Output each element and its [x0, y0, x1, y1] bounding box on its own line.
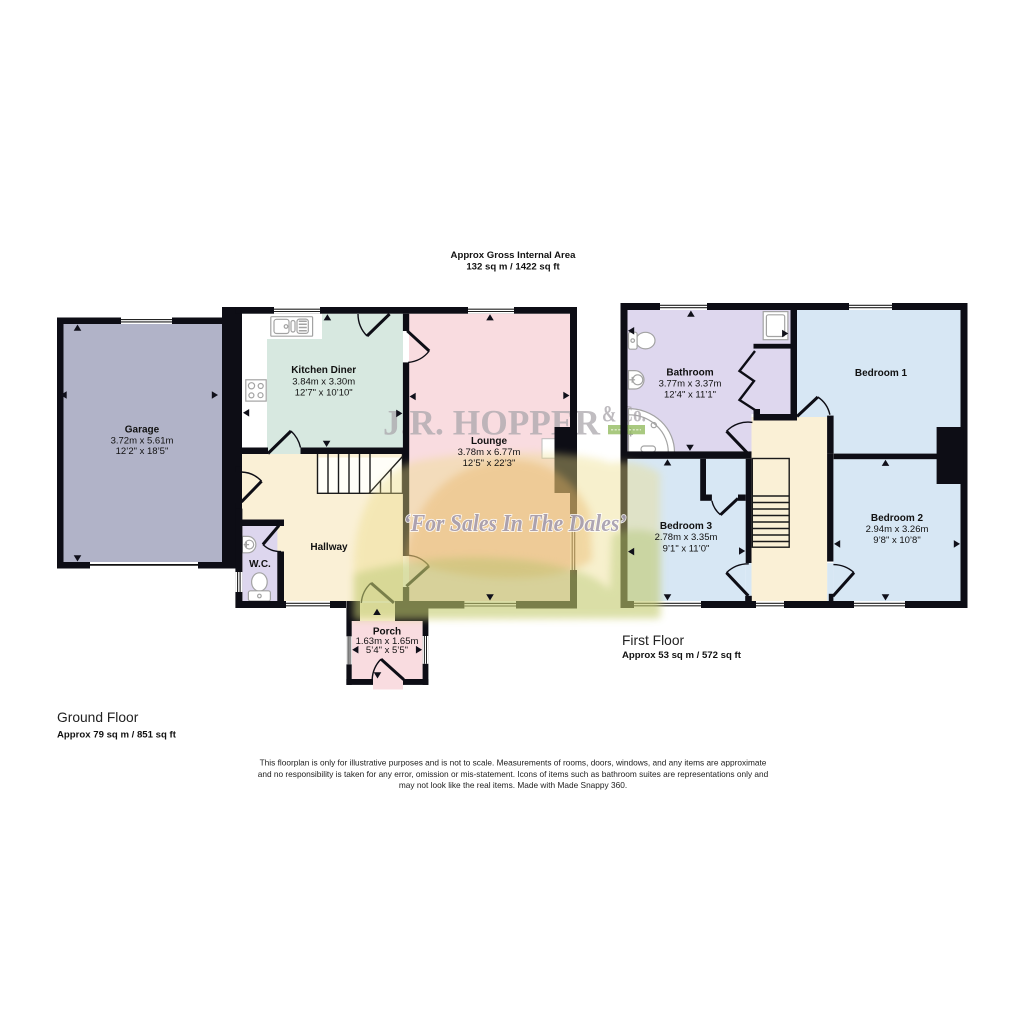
svg-text:and no responsibility is taken: and no responsibility is taken for any e…: [258, 769, 769, 779]
svg-text:12’5" x 22’3": 12’5" x 22’3": [463, 458, 516, 469]
svg-text:Approx 53 sq m / 572 sq ft: Approx 53 sq m / 572 sq ft: [622, 650, 742, 661]
svg-text:12’2" x 18’5": 12’2" x 18’5": [116, 446, 169, 457]
svg-text:Hallway: Hallway: [310, 542, 348, 553]
svg-text:132 sq m / 1422 sq ft: 132 sq m / 1422 sq ft: [466, 262, 560, 273]
svg-text:Kitchen Diner: Kitchen Diner: [291, 365, 356, 376]
svg-text:3.77m x 3.37m: 3.77m x 3.37m: [659, 379, 722, 390]
svg-text:Bedroom 2: Bedroom 2: [871, 513, 924, 524]
svg-text:may not look like the real ite: may not look like the real items. Made w…: [399, 780, 627, 790]
svg-text:‘For Sales In The Dales’: ‘For Sales In The Dales’: [404, 511, 627, 537]
svg-text:3.72m x 5.61m: 3.72m x 5.61m: [111, 436, 174, 447]
svg-text:This floorplan is only for ill: This floorplan is only for illustrative …: [260, 758, 767, 768]
svg-text:Approx 79 sq m / 851 sq ft: Approx 79 sq m / 851 sq ft: [57, 730, 177, 741]
svg-text:Lounge: Lounge: [471, 436, 508, 447]
svg-text:5’4" x 5’5": 5’4" x 5’5": [366, 645, 408, 656]
svg-text:Bathroom: Bathroom: [666, 367, 713, 378]
svg-text:3.78m x 6.77m: 3.78m x 6.77m: [458, 447, 521, 458]
svg-text:3.84m x 3.30m: 3.84m x 3.30m: [292, 376, 355, 387]
svg-text:Garage: Garage: [125, 425, 160, 436]
svg-text:Ground Floor: Ground Floor: [57, 710, 139, 725]
svg-text:W.C.: W.C.: [249, 559, 271, 570]
svg-text:12’4" x 11’1": 12’4" x 11’1": [664, 390, 716, 401]
svg-text:12’7" x 10’10": 12’7" x 10’10": [295, 387, 353, 398]
svg-text:Bedroom 1: Bedroom 1: [855, 368, 908, 379]
svg-text:Approx Gross Internal Area: Approx Gross Internal Area: [451, 250, 577, 261]
svg-text:2.94m x 3.26m: 2.94m x 3.26m: [866, 524, 929, 535]
svg-text:9’1" x 11’0": 9’1" x 11’0": [663, 543, 710, 554]
svg-text:Bedroom 3: Bedroom 3: [660, 521, 713, 532]
svg-text:2.78m x 3.35m: 2.78m x 3.35m: [655, 532, 718, 543]
svg-text:9’8" x 10’8": 9’8" x 10’8": [873, 535, 920, 546]
svg-text:First Floor: First Floor: [622, 633, 684, 648]
